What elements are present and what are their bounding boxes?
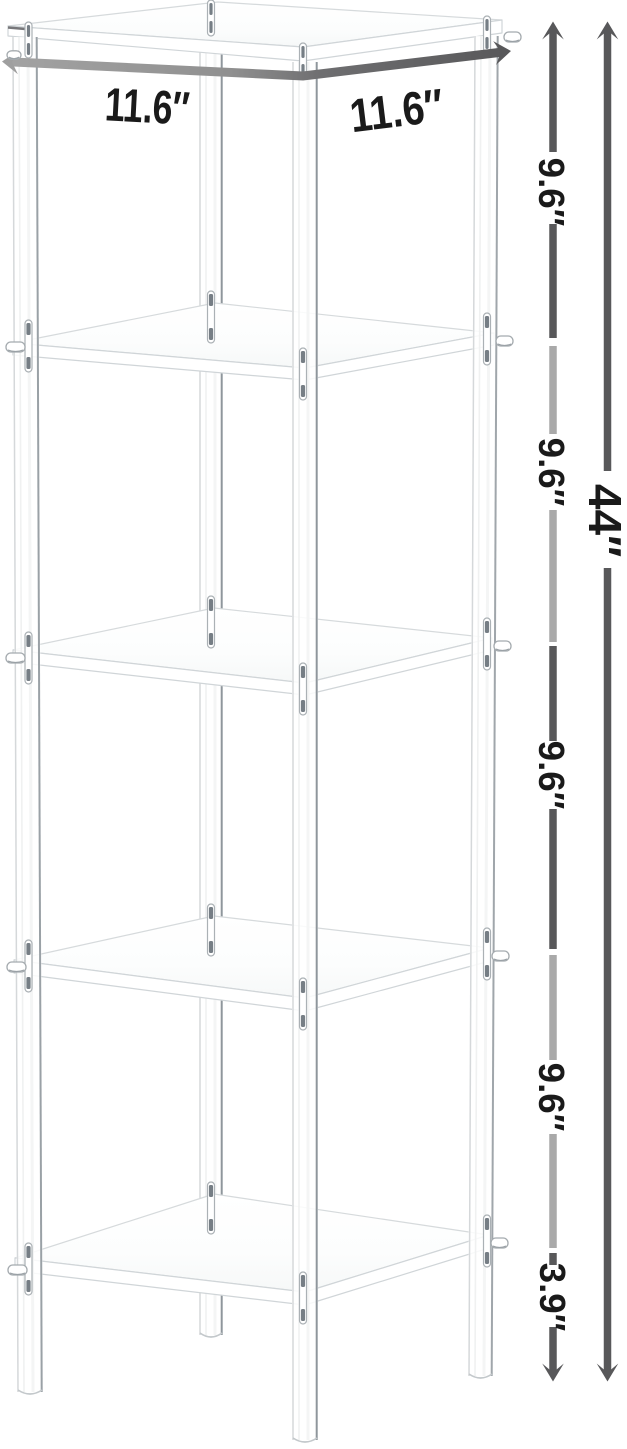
svg-text:9.6″: 9.6″: [531, 741, 572, 810]
svg-text:11.6″: 11.6″: [104, 78, 191, 135]
svg-text:9.6″: 9.6″: [531, 1063, 572, 1132]
svg-text:3.9″: 3.9″: [532, 1263, 573, 1332]
svg-text:9.6″: 9.6″: [531, 158, 572, 227]
svg-text:44″: 44″: [579, 484, 627, 557]
svg-text:9.6″: 9.6″: [531, 438, 572, 507]
